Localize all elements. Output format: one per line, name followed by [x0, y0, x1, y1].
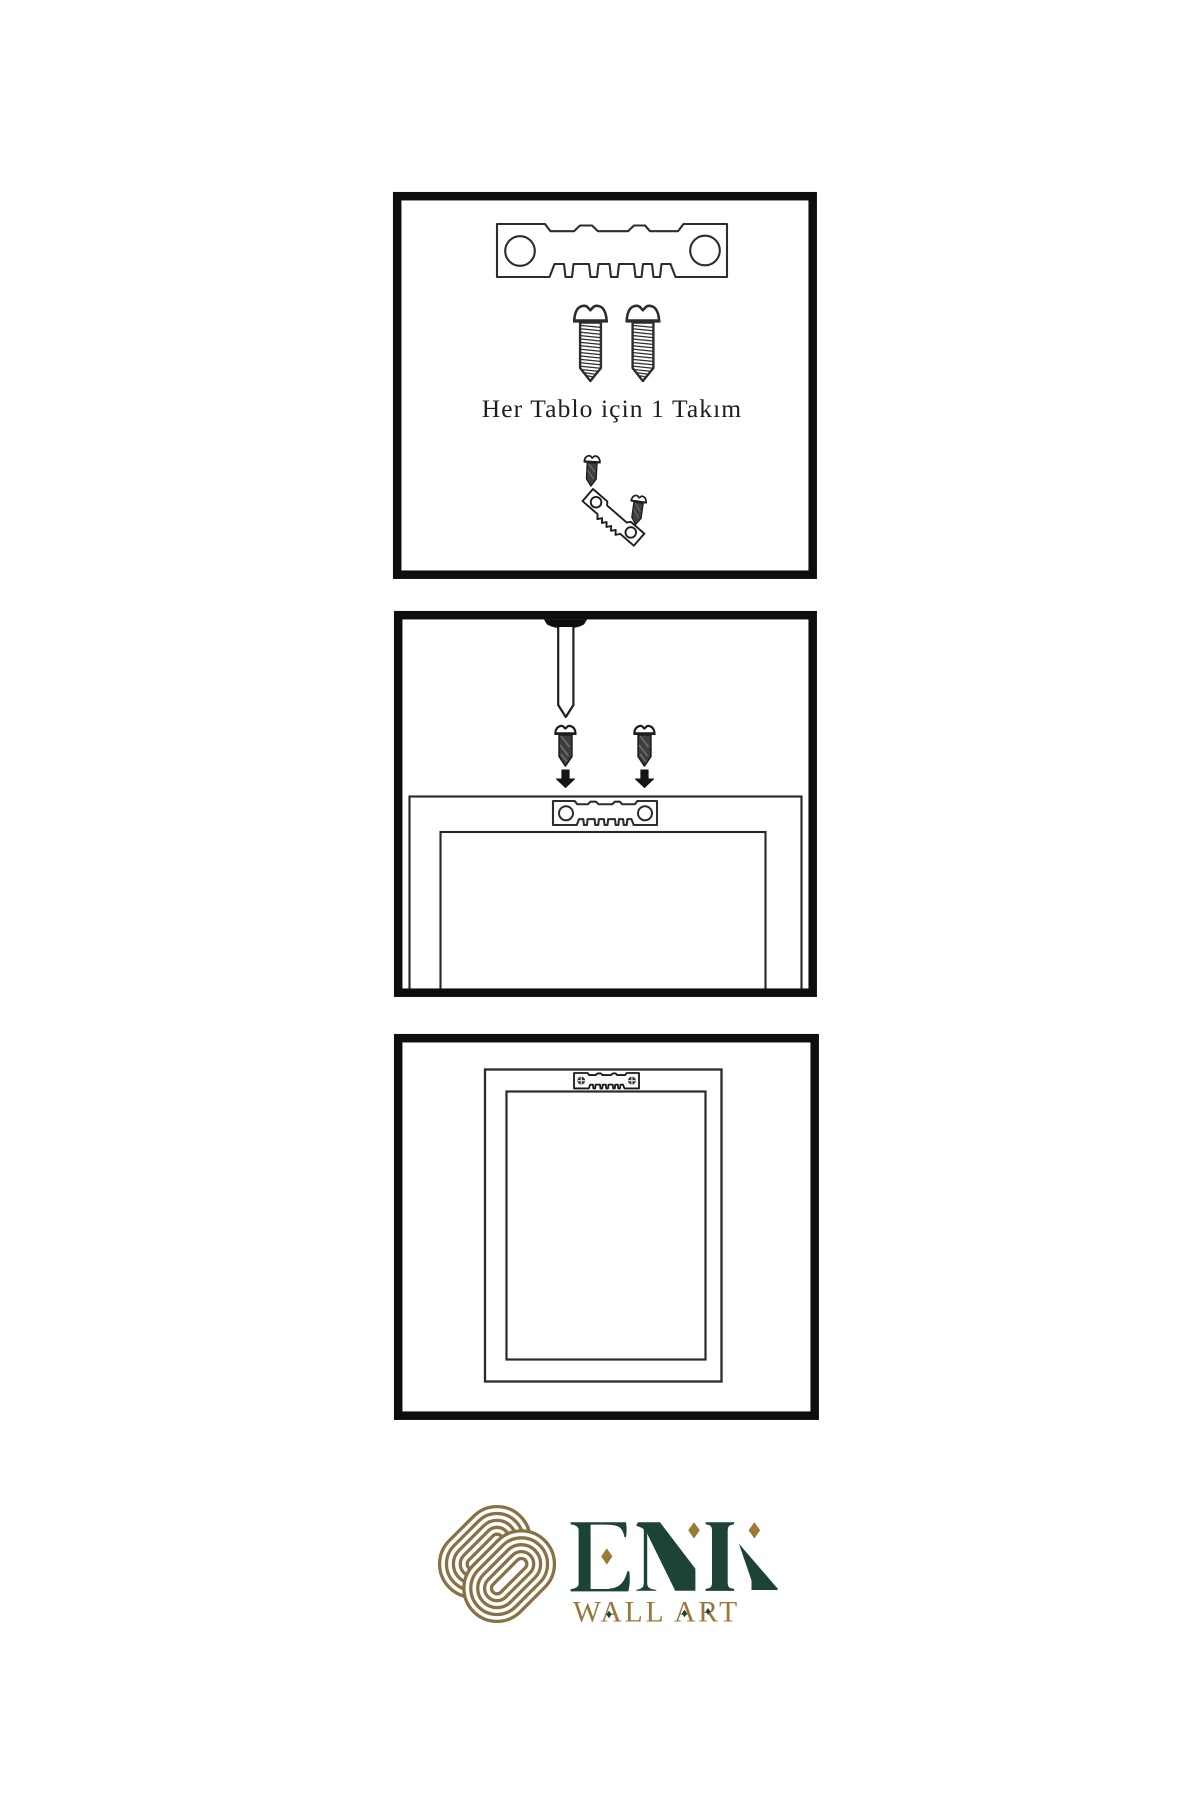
svg-text:WALL ART: WALL ART [573, 1596, 740, 1628]
svg-text:Her Tablo için 1 Takım: Her Tablo için 1 Takım [482, 394, 742, 423]
